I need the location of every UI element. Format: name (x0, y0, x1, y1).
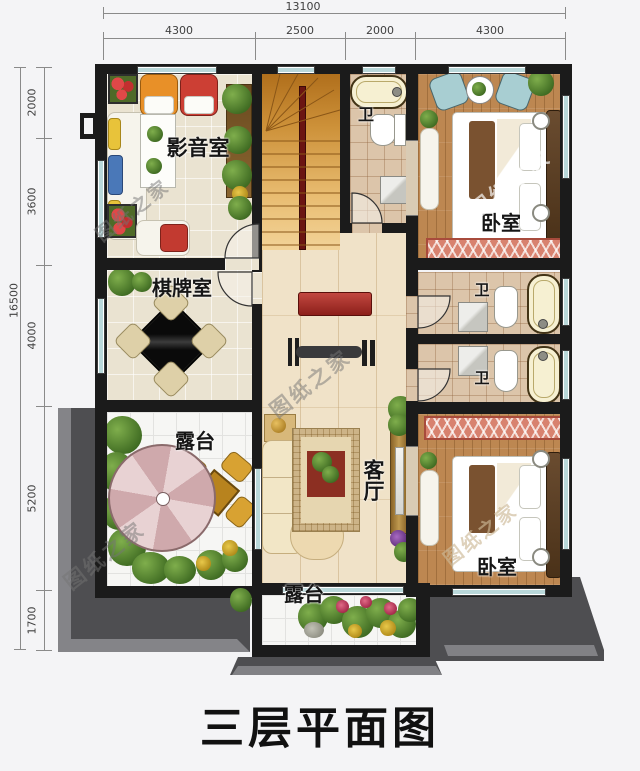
window (448, 66, 526, 74)
seat-cushion (184, 96, 214, 114)
window (452, 588, 546, 596)
label-living-room: 客厅 (358, 454, 384, 506)
window (562, 350, 570, 400)
label-terrace-left: 露台 (160, 430, 230, 452)
window (562, 278, 570, 326)
plant-icon (228, 196, 252, 220)
plant-icon (146, 158, 162, 174)
window (562, 95, 570, 179)
faucet-icon (538, 319, 548, 329)
nightstand-lamp (532, 450, 550, 468)
window (562, 458, 570, 550)
label-bath-top: 卫 (352, 106, 380, 124)
bathtub (527, 274, 561, 334)
label-bath-mid2: 卫 (468, 370, 496, 387)
wall-stairs-bath (340, 64, 350, 233)
door-opening-media (225, 258, 259, 270)
flower-icon (348, 624, 362, 638)
label-media-room: 影音室 (160, 137, 236, 160)
flower-icon (360, 596, 372, 608)
platform-right-bevel (444, 645, 598, 656)
wall-bedroom-bath (406, 258, 572, 270)
toilet-tank (394, 114, 406, 146)
bench-cushion-red (160, 224, 188, 252)
wall-terraceB-bottom (252, 645, 430, 657)
floorplan-page: 13100 4300 2500 2000 4300 16500 2000 360… (0, 0, 640, 771)
plant-icon (322, 466, 339, 483)
plant-icon (420, 110, 438, 128)
sofa-pillow-blue (108, 155, 123, 195)
plant-icon (472, 82, 486, 96)
washer (458, 302, 488, 332)
rock-icon (304, 622, 324, 638)
flower-icon (384, 602, 397, 615)
label-terrace-bottom: 露台 (272, 583, 336, 605)
bench-bar (370, 340, 375, 366)
door-opening-bath-top (352, 223, 382, 233)
door-opening-chess (252, 272, 262, 304)
door-opening-bath-mid2 (406, 369, 418, 401)
bedroom-rug (424, 416, 564, 440)
plant-icon (164, 556, 196, 584)
plant-icon (104, 416, 142, 454)
plant-icon (420, 452, 437, 469)
bathtub (350, 75, 408, 109)
stair-rail (299, 86, 306, 250)
nightstand-lamp (532, 204, 550, 222)
window (97, 298, 105, 374)
nightstand-lamp (532, 548, 550, 566)
bench-bar (362, 340, 367, 366)
toilet (494, 286, 518, 328)
label-bedroom-bottom: 卧室 (466, 556, 528, 578)
plant-icon (222, 84, 252, 114)
flower-icon (336, 600, 349, 613)
page-title: 三层平面图 (0, 692, 640, 756)
window (137, 66, 217, 74)
pillow (519, 465, 541, 509)
window (277, 66, 315, 74)
door-opening-bedroom-bottom (406, 446, 418, 516)
red-cabinet (298, 292, 372, 316)
plant-icon (230, 588, 252, 612)
sofa-pillow-yellow (108, 118, 121, 150)
bathtub (527, 346, 561, 404)
flower-icon (196, 556, 211, 571)
wall-bath-divider (406, 334, 572, 344)
umbrella-pole (156, 492, 170, 506)
wall-bath-bottom (406, 402, 572, 414)
flower-planter (108, 74, 138, 104)
washer (380, 176, 408, 204)
chaise (420, 470, 439, 546)
label-chess-room: 棋牌室 (143, 277, 221, 299)
seat-cushion (144, 96, 174, 114)
platform-bottom-bevel (232, 666, 442, 675)
chaise (420, 128, 439, 210)
window (254, 468, 262, 550)
flue-inner (84, 118, 93, 134)
flower-icon (380, 620, 396, 636)
bench-bar (288, 338, 292, 366)
nightstand-lamp (532, 112, 550, 130)
faucet-icon (538, 351, 548, 361)
mirror (395, 447, 404, 515)
window (362, 66, 396, 74)
door-opening-bath-mid1 (406, 296, 418, 328)
toilet (494, 350, 518, 392)
faucet-icon (392, 87, 402, 97)
door-opening-bedroom-top (406, 140, 418, 216)
label-bath-mid1: 卫 (468, 282, 496, 299)
wall-chess-bottom (95, 400, 262, 412)
